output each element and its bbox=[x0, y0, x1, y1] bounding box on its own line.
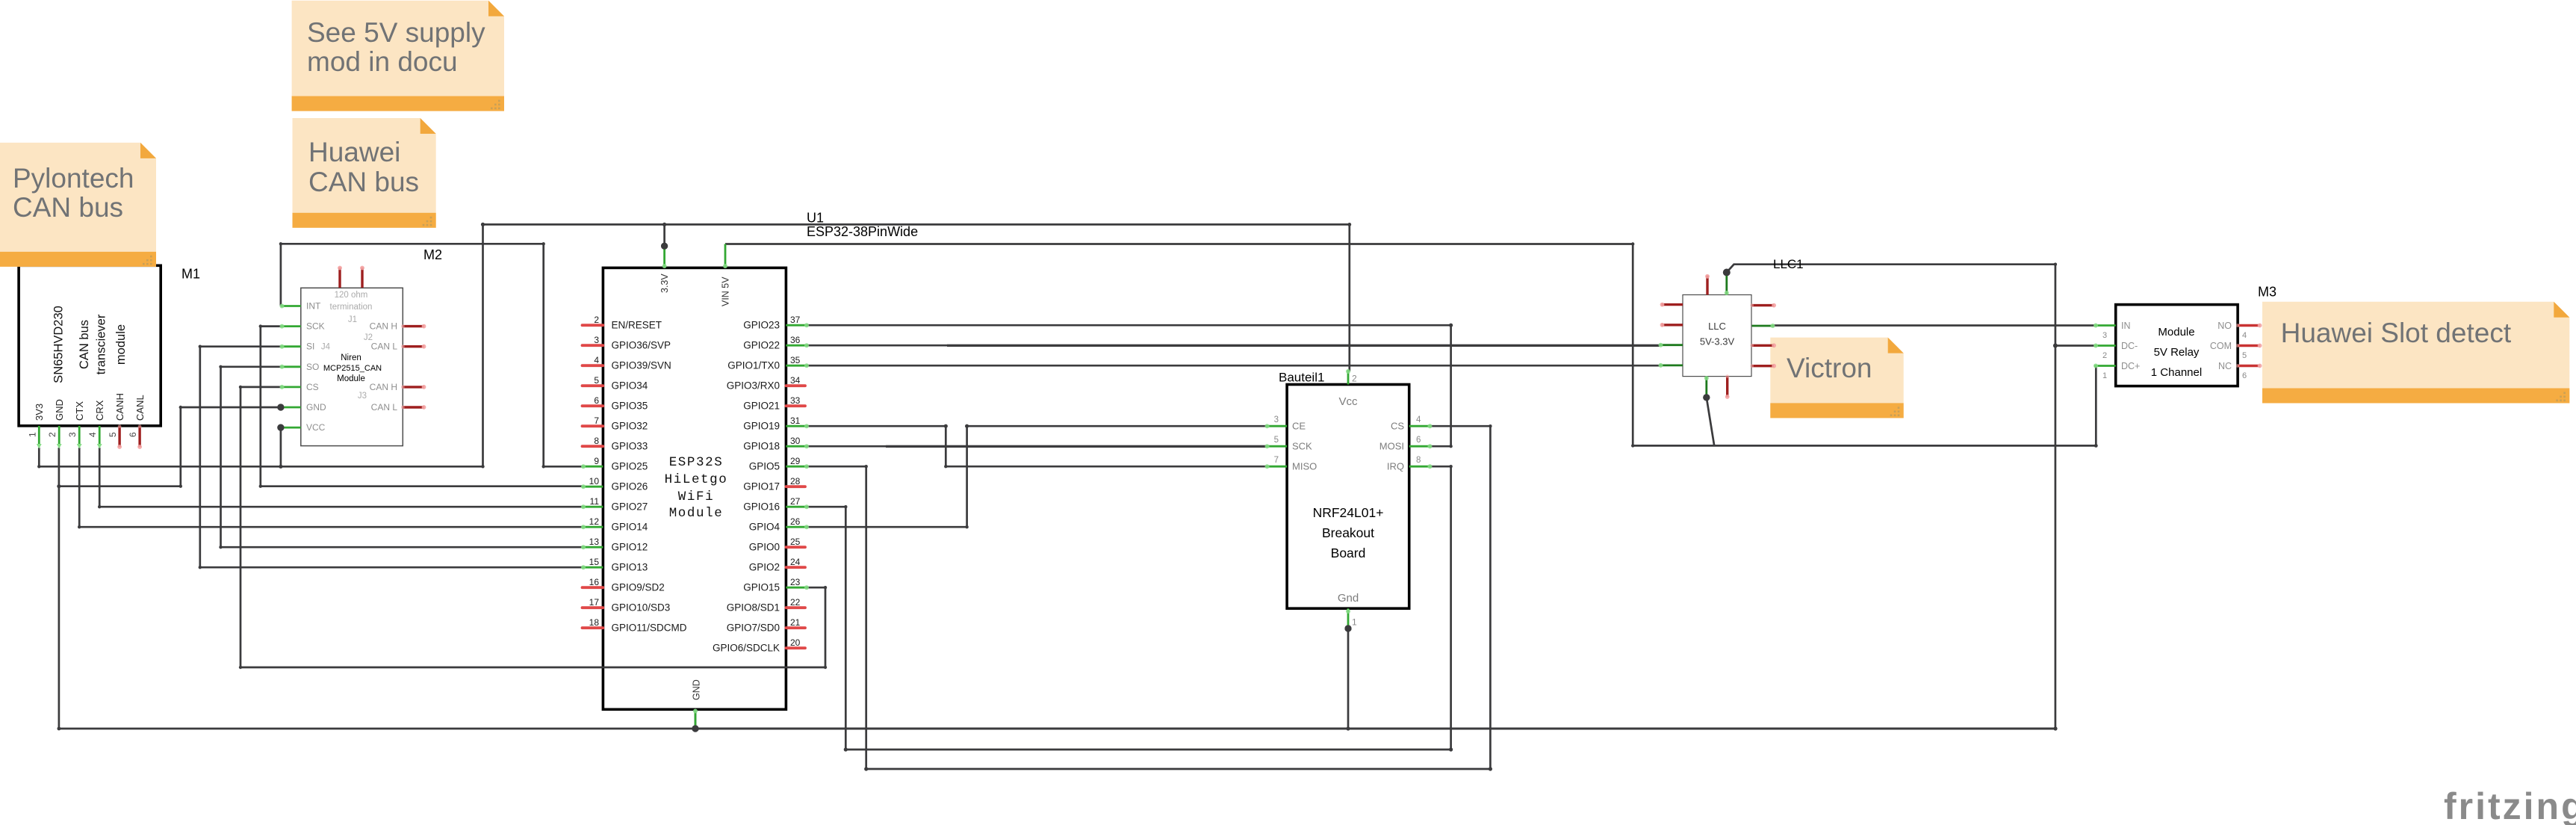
svg-text:MISO: MISO bbox=[1292, 461, 1317, 472]
svg-text:9: 9 bbox=[594, 456, 599, 466]
svg-text:ESP32S: ESP32S bbox=[669, 455, 724, 470]
svg-text:28: 28 bbox=[790, 476, 801, 486]
svg-text:GPIO34: GPIO34 bbox=[612, 380, 648, 392]
svg-text:IRQ: IRQ bbox=[1387, 461, 1404, 472]
svg-text:3.3V: 3.3V bbox=[659, 274, 670, 293]
svg-text:M2: M2 bbox=[423, 247, 442, 262]
svg-text:SCK: SCK bbox=[1292, 441, 1312, 452]
svg-text:CAN bus: CAN bus bbox=[78, 320, 91, 369]
svg-text:SCK: SCK bbox=[306, 321, 325, 332]
svg-text:3: 3 bbox=[67, 432, 78, 437]
svg-text:3: 3 bbox=[1274, 415, 1279, 424]
svg-text:SO: SO bbox=[306, 362, 319, 372]
svg-text:GPIO8/SD1: GPIO8/SD1 bbox=[727, 602, 780, 614]
svg-text:GPIO0: GPIO0 bbox=[749, 542, 780, 553]
svg-text:GPIO12: GPIO12 bbox=[612, 542, 648, 553]
svg-text:5V-3.3V: 5V-3.3V bbox=[1700, 336, 1735, 347]
svg-text:MCP2515_CAN: MCP2515_CAN bbox=[323, 364, 382, 373]
svg-text:3V3: 3V3 bbox=[34, 404, 45, 421]
svg-text:Bauteil1: Bauteil1 bbox=[1279, 371, 1324, 385]
svg-text:7: 7 bbox=[594, 415, 599, 426]
svg-text:Vcc: Vcc bbox=[1338, 395, 1358, 408]
svg-text:6: 6 bbox=[594, 395, 599, 406]
svg-text:GPIO22: GPIO22 bbox=[743, 340, 780, 351]
svg-text:36: 36 bbox=[790, 335, 801, 345]
svg-text:22: 22 bbox=[790, 597, 801, 608]
svg-text:2: 2 bbox=[594, 315, 599, 325]
svg-text:4: 4 bbox=[2242, 331, 2247, 340]
svg-text:J3: J3 bbox=[358, 392, 367, 401]
svg-text:CAN bus: CAN bus bbox=[308, 167, 419, 197]
svg-text:SI: SI bbox=[306, 342, 314, 352]
svg-text:GPIO36/SVP: GPIO36/SVP bbox=[612, 340, 671, 351]
svg-text:CE: CE bbox=[1292, 421, 1306, 432]
svg-text:mod in docu: mod in docu bbox=[307, 46, 458, 77]
svg-text:18: 18 bbox=[589, 617, 600, 628]
svg-text:GND: GND bbox=[692, 679, 702, 700]
svg-text:1: 1 bbox=[1352, 617, 1357, 628]
svg-text:10: 10 bbox=[589, 476, 600, 486]
svg-text:GPIO25: GPIO25 bbox=[612, 461, 648, 472]
svg-text:GPIO26: GPIO26 bbox=[612, 481, 648, 492]
svg-text:3: 3 bbox=[594, 335, 599, 345]
svg-text:31: 31 bbox=[790, 415, 801, 426]
svg-text:LLC1: LLC1 bbox=[1773, 257, 1804, 271]
svg-text:4: 4 bbox=[1416, 415, 1421, 424]
svg-text:35: 35 bbox=[790, 355, 801, 365]
svg-text:CAN bus: CAN bus bbox=[13, 192, 123, 223]
svg-text:Gnd: Gnd bbox=[1338, 592, 1359, 605]
svg-text:See 5V supply: See 5V supply bbox=[307, 17, 485, 48]
svg-text:termination: termination bbox=[330, 303, 373, 312]
svg-text:21: 21 bbox=[790, 617, 801, 628]
svg-text:5: 5 bbox=[594, 375, 599, 386]
svg-text:12: 12 bbox=[589, 516, 600, 527]
svg-text:2: 2 bbox=[47, 432, 58, 437]
svg-text:30: 30 bbox=[790, 436, 801, 446]
svg-text:16: 16 bbox=[589, 577, 600, 587]
svg-text:transciever: transciever bbox=[94, 314, 108, 374]
svg-text:J2: J2 bbox=[364, 333, 373, 342]
svg-text:GPIO1/TX0: GPIO1/TX0 bbox=[727, 360, 780, 371]
svg-text:CANL: CANL bbox=[134, 395, 146, 421]
svg-text:CTX: CTX bbox=[74, 401, 85, 421]
svg-text:J1: J1 bbox=[348, 315, 357, 324]
svg-text:CS: CS bbox=[1391, 421, 1404, 432]
svg-text:5: 5 bbox=[1274, 436, 1279, 445]
svg-text:NC: NC bbox=[2218, 361, 2232, 371]
svg-text:INT: INT bbox=[306, 301, 321, 312]
svg-text:120 ohm: 120 ohm bbox=[335, 291, 368, 300]
svg-text:COM: COM bbox=[2210, 341, 2232, 351]
svg-text:1: 1 bbox=[27, 432, 37, 437]
svg-text:11: 11 bbox=[590, 496, 600, 507]
svg-text:2: 2 bbox=[1352, 374, 1357, 384]
svg-text:GPIO32: GPIO32 bbox=[612, 421, 648, 432]
svg-text:1: 1 bbox=[2102, 371, 2107, 380]
svg-text:GPIO15: GPIO15 bbox=[743, 582, 780, 593]
svg-text:GND: GND bbox=[306, 402, 326, 412]
svg-text:GPIO35: GPIO35 bbox=[612, 401, 648, 412]
svg-text:DC+: DC+ bbox=[2121, 361, 2140, 371]
svg-text:1 Channel: 1 Channel bbox=[2151, 366, 2202, 379]
svg-text:GPIO2: GPIO2 bbox=[749, 562, 780, 573]
svg-text:6: 6 bbox=[128, 432, 138, 437]
svg-text:Niren: Niren bbox=[341, 353, 361, 362]
svg-text:GPIO13: GPIO13 bbox=[612, 562, 648, 573]
svg-text:33: 33 bbox=[790, 395, 801, 406]
svg-text:GPIO10/SD3: GPIO10/SD3 bbox=[612, 602, 671, 614]
svg-text:M1: M1 bbox=[181, 267, 200, 282]
svg-text:MOSI: MOSI bbox=[1379, 441, 1404, 452]
svg-text:6: 6 bbox=[1416, 436, 1421, 445]
svg-text:Breakout: Breakout bbox=[1322, 525, 1374, 540]
svg-text:VCC: VCC bbox=[306, 422, 326, 433]
svg-text:GND: GND bbox=[54, 399, 65, 421]
svg-text:4: 4 bbox=[594, 355, 599, 365]
svg-text:2: 2 bbox=[2102, 351, 2107, 360]
svg-text:CAN L: CAN L bbox=[371, 402, 398, 412]
svg-text:GPIO33: GPIO33 bbox=[612, 441, 648, 452]
svg-text:GPIO4: GPIO4 bbox=[749, 522, 780, 533]
svg-text:Pylontech: Pylontech bbox=[13, 163, 134, 194]
svg-text:GPIO7/SD0: GPIO7/SD0 bbox=[727, 622, 780, 634]
svg-text:IN: IN bbox=[2121, 321, 2131, 331]
svg-text:CAN H: CAN H bbox=[370, 382, 397, 392]
svg-text:Module: Module bbox=[2158, 326, 2194, 339]
svg-text:HiLetgo: HiLetgo bbox=[665, 472, 728, 487]
svg-text:GPIO17: GPIO17 bbox=[743, 481, 780, 492]
svg-text:15: 15 bbox=[589, 557, 600, 567]
svg-text:CS: CS bbox=[306, 382, 319, 392]
svg-text:4: 4 bbox=[87, 432, 98, 437]
svg-text:U1: U1 bbox=[807, 211, 824, 226]
svg-text:23: 23 bbox=[790, 577, 801, 587]
svg-text:CAN L: CAN L bbox=[371, 342, 398, 352]
svg-text:CAN H: CAN H bbox=[370, 321, 397, 332]
svg-text:17: 17 bbox=[589, 597, 600, 608]
svg-text:Module: Module bbox=[669, 506, 724, 521]
svg-text:5: 5 bbox=[108, 432, 118, 437]
svg-text:8: 8 bbox=[1416, 456, 1421, 465]
svg-text:Huawei Slot detect: Huawei Slot detect bbox=[2281, 318, 2512, 348]
svg-text:GPIO3/RX0: GPIO3/RX0 bbox=[727, 380, 780, 392]
svg-text:7: 7 bbox=[1274, 456, 1279, 465]
svg-text:ESP32-38PinWide: ESP32-38PinWide bbox=[807, 224, 918, 239]
svg-text:GPIO5: GPIO5 bbox=[749, 461, 780, 472]
svg-text:24: 24 bbox=[790, 557, 801, 567]
svg-text:5: 5 bbox=[2242, 351, 2247, 360]
svg-text:LLC: LLC bbox=[1708, 321, 1726, 332]
svg-text:6: 6 bbox=[2242, 371, 2247, 380]
svg-text:GPIO14: GPIO14 bbox=[612, 522, 648, 533]
svg-text:NRF24L01+: NRF24L01+ bbox=[1313, 505, 1384, 520]
svg-text:29: 29 bbox=[790, 456, 801, 466]
svg-text:EN/RESET: EN/RESET bbox=[612, 320, 662, 331]
svg-text:CANH: CANH bbox=[114, 393, 125, 421]
svg-text:GPIO18: GPIO18 bbox=[743, 441, 780, 452]
svg-text:NO: NO bbox=[2217, 321, 2232, 331]
svg-text:GPIO21: GPIO21 bbox=[743, 401, 780, 412]
svg-text:37: 37 bbox=[790, 315, 801, 325]
svg-text:GPIO11/SDCMD: GPIO11/SDCMD bbox=[612, 622, 687, 634]
svg-text:Victron: Victron bbox=[1787, 353, 1872, 383]
svg-text:module: module bbox=[114, 324, 128, 365]
svg-text:GPIO39/SVN: GPIO39/SVN bbox=[612, 360, 671, 371]
svg-text:Huawei: Huawei bbox=[308, 137, 400, 167]
svg-text:20: 20 bbox=[790, 637, 801, 648]
svg-text:DC-: DC- bbox=[2121, 341, 2138, 351]
svg-text:M3: M3 bbox=[2258, 285, 2276, 300]
svg-text:13: 13 bbox=[589, 537, 600, 547]
svg-text:34: 34 bbox=[790, 375, 801, 386]
svg-text:3: 3 bbox=[2102, 331, 2107, 340]
svg-text:WiFi: WiFi bbox=[678, 489, 714, 504]
svg-text:GPIO27: GPIO27 bbox=[612, 501, 648, 513]
svg-text:fritzing: fritzing bbox=[2444, 785, 2576, 825]
svg-text:27: 27 bbox=[790, 496, 801, 507]
svg-text:J4: J4 bbox=[321, 343, 331, 352]
svg-text:25: 25 bbox=[790, 537, 801, 547]
svg-text:GPIO6/SDCLK: GPIO6/SDCLK bbox=[713, 643, 780, 654]
svg-text:5V Relay: 5V Relay bbox=[2154, 346, 2200, 359]
svg-text:GPIO16: GPIO16 bbox=[743, 501, 780, 513]
svg-text:Module: Module bbox=[337, 374, 365, 383]
svg-text:8: 8 bbox=[594, 436, 599, 446]
svg-text:CRX: CRX bbox=[94, 400, 105, 421]
svg-text:GPIO9/SD2: GPIO9/SD2 bbox=[612, 582, 665, 593]
svg-text:26: 26 bbox=[790, 516, 801, 527]
svg-text:SN65HVD230: SN65HVD230 bbox=[52, 306, 66, 383]
svg-text:VIN 5V: VIN 5V bbox=[721, 276, 731, 306]
svg-text:GPIO23: GPIO23 bbox=[743, 320, 780, 331]
svg-text:GPIO19: GPIO19 bbox=[743, 421, 780, 432]
svg-text:Board: Board bbox=[1331, 546, 1366, 560]
